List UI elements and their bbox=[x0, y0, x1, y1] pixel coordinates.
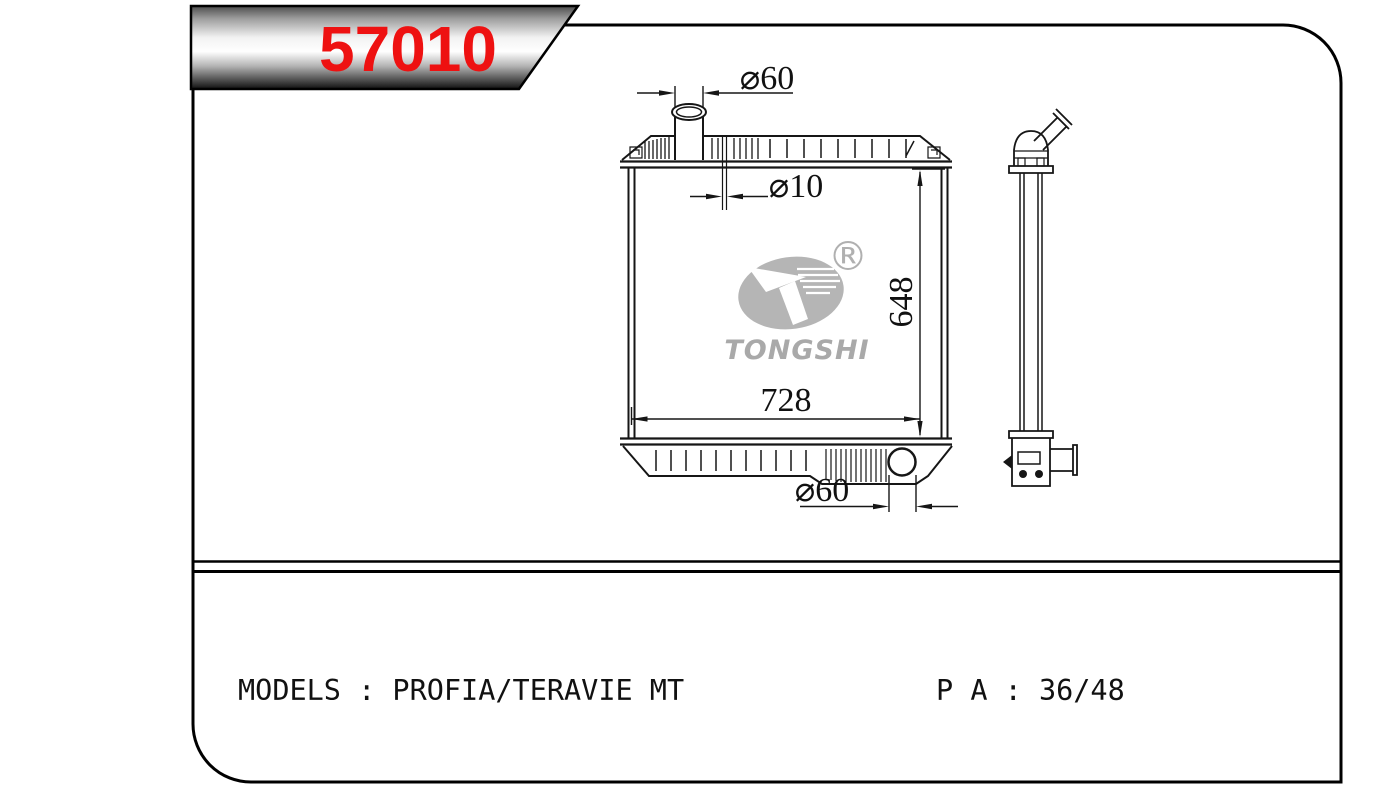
spec-line-pa: P A : 36/48 bbox=[936, 671, 1211, 711]
brand-wordmark: TONGSHI bbox=[718, 336, 876, 366]
radiator-side-view bbox=[1003, 109, 1077, 486]
dim-label-bottom-outlet-diameter: ⌀60 bbox=[762, 473, 882, 509]
spec-list-left: MODELS : PROFIA/TERAVIE MT CORE SIZE : 6… bbox=[238, 592, 684, 788]
spec-list-right: P A : 36/48 DPI : OEM : 16081-6000 NISSE… bbox=[936, 592, 1211, 788]
spec-line-models: MODELS : PROFIA/TERAVIE MT bbox=[238, 671, 684, 711]
dim-label-overflow-pipe-diameter: ⌀10 bbox=[736, 169, 856, 205]
catalog-page: 57010 ⌀60 ⌀10 648 728 ⌀60 ® TONGSHI MODE… bbox=[0, 0, 1399, 788]
dim-label-top-inlet-diameter: ⌀60 bbox=[707, 61, 827, 97]
dim-label-core-height: 648 bbox=[884, 252, 924, 352]
registered-trademark-icon: ® bbox=[828, 236, 868, 278]
part-number: 57010 bbox=[193, 16, 623, 82]
dim-label-core-width: 728 bbox=[726, 383, 846, 419]
